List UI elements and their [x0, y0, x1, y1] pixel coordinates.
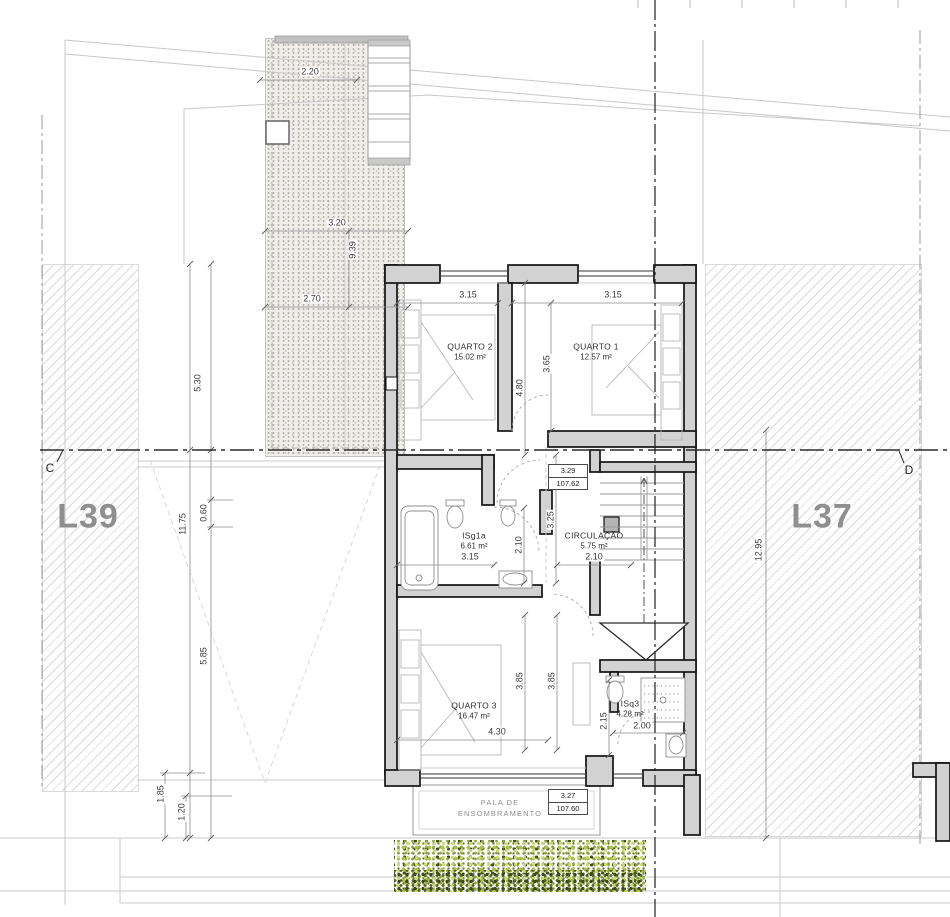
room-area: 6.61 m² [460, 541, 487, 551]
level-marker-upper: 3.29 107.62 [548, 464, 588, 490]
section-label-d: D [905, 463, 914, 477]
dim-label: 3.65 [543, 354, 552, 374]
stair-winder-triangle [600, 623, 688, 660]
room-label-quarto1: QUARTO 1 12.57 m² [573, 342, 619, 363]
stairs [600, 476, 688, 660]
terrace-stair-ladder [368, 44, 410, 160]
level-value: 3.27 [549, 790, 587, 803]
room-area: 15.02 m² [447, 352, 493, 362]
pala-line2: ENSOMBRAMENTO [458, 808, 542, 819]
room-area: 5.75 m² [565, 541, 624, 551]
dim-label: 4.30 [487, 728, 507, 737]
floorplan-linework [0, 0, 950, 917]
dim-label: 3.85 [516, 671, 525, 691]
room-name: QUARTO 1 [573, 342, 619, 353]
room-name: QUARTO 2 [447, 342, 493, 353]
dim-label: 4.80 [516, 378, 525, 398]
dim-label: 2.70 [302, 295, 322, 304]
dim-label: 3.15 [603, 291, 623, 300]
level-elevation: 107.60 [549, 803, 587, 815]
room-label-quarto2: QUARTO 2 15.02 m² [447, 342, 493, 363]
dim-label: 2.10 [515, 535, 524, 555]
room-name: CIRCULAÇÃO [565, 531, 624, 542]
dim-label: 12.95 [755, 538, 764, 563]
room-area: 4.28 m² [616, 709, 643, 719]
dim-label: 3.85 [548, 671, 557, 691]
dim-label: 3.20 [327, 219, 347, 228]
level-value: 3.29 [549, 465, 587, 478]
room-label-quarto3: QUARTO 3 16.47 m² [451, 701, 497, 722]
dim-label: 9.39 [349, 240, 358, 260]
pala-label: PALA DE ENSOMBRAMENTO [458, 797, 542, 820]
lot-label-l39: L39 [57, 498, 119, 537]
dim-label: 2.10 [584, 553, 604, 562]
dim-label: 3.15 [458, 291, 478, 300]
dim-label: 2.20 [300, 68, 320, 77]
room-area: 16.47 m² [451, 711, 497, 721]
floorplan-canvas: L39 L37 C D QUARTO 2 15.02 m² QUARTO 1 1… [0, 0, 950, 917]
dim-label: 2.15 [600, 711, 609, 731]
room-label-isq3: ISq3 4.28 m² [616, 699, 643, 720]
room-area: 12.57 m² [573, 352, 619, 362]
dim-label: 5.85 [200, 646, 209, 666]
dim-label: 1.85 [157, 784, 166, 804]
desk [573, 663, 590, 725]
shower-tray [641, 678, 685, 722]
lot-label-l37: L37 [791, 498, 853, 537]
pala-line1: PALA DE [458, 797, 542, 808]
room-name: ISq3 [616, 699, 643, 710]
dim-label: 2.00 [632, 722, 652, 731]
dim-label: 5.30 [194, 373, 203, 393]
terrace-chimney [266, 121, 289, 144]
dim-label: 1.20 [178, 802, 187, 822]
dim-label: 3.25 [547, 510, 556, 530]
room-name: QUARTO 3 [451, 701, 497, 712]
dim-label: 3.15 [460, 553, 480, 562]
room-name: ISg1a [460, 531, 487, 542]
level-elevation: 107.62 [549, 478, 587, 490]
room-label-circulacao: CIRCULAÇÃO 5.75 m² [565, 531, 624, 552]
section-label-c: C [46, 461, 55, 475]
hedge-planting [394, 840, 646, 892]
room-label-isg1a: ISg1a 6.61 m² [460, 531, 487, 552]
left-wall-window [386, 377, 397, 390]
level-marker-lower: 3.27 107.60 [548, 789, 588, 815]
dim-label: 0.60 [200, 503, 209, 523]
dim-label: 11.75 [179, 512, 188, 536]
